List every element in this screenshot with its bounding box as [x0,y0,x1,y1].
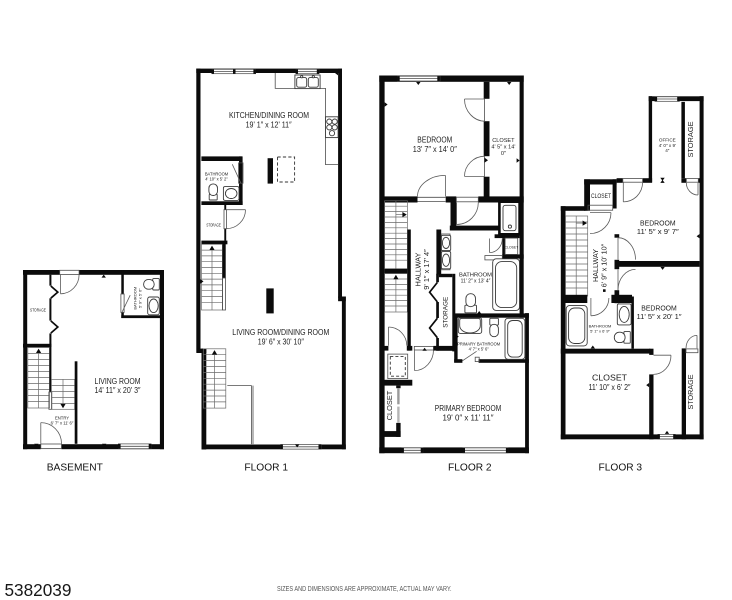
svg-text:5382039: 5382039 [5,580,72,600]
svg-text:CLOSET: CLOSET [505,245,519,249]
svg-text:4' 7″ x 5' 6″: 4' 7″ x 5' 6″ [469,346,490,351]
svg-text:BATHROOM: BATHROOM [459,272,492,278]
svg-text:11' 5″ x 20' 1″: 11' 5″ x 20' 1″ [637,312,682,321]
svg-text:BASEMENT: BASEMENT [47,463,103,474]
svg-text:4″: 4″ [665,148,670,153]
svg-text:CLOSET: CLOSET [592,374,627,383]
svg-text:CLOSET: CLOSET [591,193,611,200]
svg-text:LIVING ROOM/DINING ROOM: LIVING ROOM/DINING ROOM [232,328,329,337]
svg-text:5' 9″ x 5' 6″: 5' 9″ x 5' 6″ [137,288,142,308]
svg-text:STORAGE: STORAGE [206,223,221,228]
svg-text:11' 2″ x 13' 4″: 11' 2″ x 13' 4″ [461,279,491,285]
svg-text:LIVING ROOM: LIVING ROOM [95,377,141,386]
svg-text:6' 7″ x 11' 6″: 6' 7″ x 11' 6″ [51,421,74,426]
svg-text:6' 9″ x 10' 10″: 6' 9″ x 10' 10″ [599,243,608,287]
svg-text:19' 6″ x 30' 10″: 19' 6″ x 30' 10″ [258,338,304,347]
svg-text:4' 10″ x 5' 2″: 4' 10″ x 5' 2″ [205,177,228,182]
svg-text:4' 5″ x 14': 4' 5″ x 14' [491,145,515,151]
svg-text:14' 11″ x 20' 3″: 14' 11″ x 20' 3″ [95,386,141,395]
svg-text:PRIMARY BEDROOM: PRIMARY BEDROOM [435,404,502,413]
svg-text:FLOOR 2: FLOOR 2 [448,463,492,474]
svg-text:BEDROOM: BEDROOM [417,136,452,145]
svg-text:11' 5″ x 9' 7″: 11' 5″ x 9' 7″ [637,227,679,236]
svg-text:13' 7″ x 14' 0″: 13' 7″ x 14' 0″ [413,145,457,154]
svg-text:0″: 0″ [501,151,506,157]
svg-text:FLOOR 3: FLOOR 3 [599,463,643,474]
svg-text:KITCHEN/DINING ROOM: KITCHEN/DINING ROOM [229,111,309,120]
svg-text:11' 10″ x 6' 2″: 11' 10″ x 6' 2″ [589,383,631,392]
svg-text:OFFICE: OFFICE [659,137,676,142]
svg-text:5' 1″ x 6' 9″: 5' 1″ x 6' 9″ [590,328,610,333]
svg-text:CLOSET: CLOSET [492,138,515,144]
svg-text:STORAGE: STORAGE [30,307,46,312]
svg-text:19' 1″ x 12' 11″: 19' 1″ x 12' 11″ [246,120,292,129]
svg-text:STORAGE: STORAGE [688,121,695,157]
svg-text:CLOSET: CLOSET [385,390,394,420]
svg-text:19' 0″ x 11' 11″: 19' 0″ x 11' 11″ [443,413,494,422]
svg-text:FLOOR 1: FLOOR 1 [244,463,288,474]
svg-text:4' 0″ x 9': 4' 0″ x 9' [659,143,676,148]
svg-text:STORAGE: STORAGE [443,296,450,328]
svg-text:9' 1″ x 17' 4″: 9' 1″ x 17' 4″ [422,249,431,290]
svg-text:STORAGE: STORAGE [688,374,695,409]
svg-text:SIZES AND DIMENSIONS ARE APPRO: SIZES AND DIMENSIONS ARE APPROXIMATE, AC… [277,586,452,593]
